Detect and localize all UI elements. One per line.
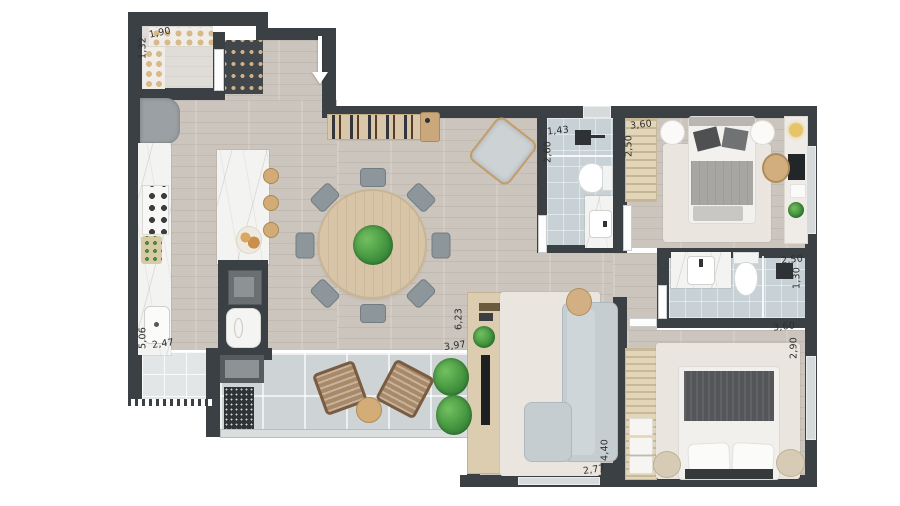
living-window <box>518 477 600 485</box>
bath1-toilet <box>578 163 604 193</box>
bathroom2-door <box>659 286 666 318</box>
desk-monitor-icon <box>788 154 805 180</box>
console-box-1 <box>479 303 501 311</box>
cutting-board <box>141 236 162 264</box>
bath2-tap-icon <box>699 259 703 267</box>
pantry-door <box>215 50 223 90</box>
balcony-plant-1 <box>433 358 469 396</box>
balcony-counter <box>220 355 264 383</box>
island-stool-3 <box>263 222 279 238</box>
dim-living-length: 6,23 <box>454 308 465 330</box>
bedroom1-bed <box>688 116 756 224</box>
balcony-counter-top <box>225 360 259 378</box>
bath1-shower-glass <box>547 155 613 157</box>
bedroom1-pillow-2 <box>721 127 748 151</box>
balcony-railing <box>220 429 472 438</box>
bath1-sink <box>589 210 612 238</box>
oven-door <box>234 277 254 297</box>
dim-living-width: 3,97 <box>443 339 466 353</box>
washing-machine <box>226 308 261 348</box>
island-stool-2 <box>263 195 279 211</box>
dim-bath1-length: 2,60 <box>543 141 554 163</box>
tv-icon <box>481 355 490 425</box>
bedroom2-window <box>806 356 816 440</box>
bedroom1-door <box>624 206 631 250</box>
bread-plate <box>237 227 261 253</box>
bath1-toilet-tank <box>602 165 613 191</box>
dim-kitchen-length: 5,06 <box>138 327 149 349</box>
dim-bedroom2-width: 3,60 <box>773 320 796 333</box>
dining-chair-w <box>296 233 315 259</box>
bedroom2-bed <box>678 366 780 480</box>
bedroom2-side-rug-left <box>653 451 681 478</box>
bathroom1-window <box>583 106 611 118</box>
dim-bedroom1-closet-depth: 2,50 <box>624 135 635 157</box>
dim-bath2-width: 2,50 <box>781 253 804 266</box>
barbecue-grill <box>224 387 254 429</box>
entrance-arrow-head <box>312 72 328 84</box>
dining-chair-s <box>360 304 386 323</box>
dim-bath2-depth: 1,30 <box>792 267 803 289</box>
wardrobe-linen-2 <box>629 437 653 455</box>
floor-plan: 1,90 1,32 5,06 2,47 6,23 3,97 4,40 2,77 … <box>0 0 900 506</box>
island-stool-1 <box>263 168 279 184</box>
bedroom1-nightstand-right <box>750 120 775 145</box>
bedroom1-desk <box>784 116 808 244</box>
desk-chair <box>762 153 790 183</box>
bedroom2-side-rug-right <box>776 449 805 477</box>
console-box-2 <box>479 313 493 321</box>
balcony-table <box>356 397 382 423</box>
bedroom2-blanket <box>684 371 774 421</box>
bedroom1-blanket <box>691 161 753 205</box>
dining-centerpiece-plant <box>353 225 393 265</box>
wardrobe-linen-1 <box>629 418 653 436</box>
bedroom2-headboard <box>685 469 773 479</box>
entry-console-shelf <box>225 40 263 94</box>
bedroom2-door <box>630 319 656 326</box>
wardrobe-linen-3 <box>629 456 653 474</box>
entrance-arrow-shaft <box>318 36 322 74</box>
sofa-side-table <box>566 288 592 316</box>
dim-living-depth: 4,40 <box>600 439 611 461</box>
desk-plant <box>788 202 804 218</box>
balcony-plant-2 <box>436 395 472 435</box>
cooktop <box>142 185 169 235</box>
sofa-chaise <box>524 402 572 462</box>
bath1-shower-arm <box>591 135 605 138</box>
bedroom1-foot-throw <box>693 206 743 221</box>
console-plant <box>473 326 495 348</box>
bath2-sink <box>687 256 715 285</box>
bedroom1-nightstand-left <box>660 120 685 145</box>
bath1-tap-icon <box>603 221 607 227</box>
dim-bath1-width: 1,43 <box>547 124 570 137</box>
dining-chair-e <box>432 233 451 259</box>
service-area-floor <box>142 352 206 400</box>
side-table-decor <box>425 118 430 123</box>
bath2-toilet <box>734 262 758 296</box>
built-in-oven <box>228 270 262 305</box>
desk-papers <box>790 184 806 198</box>
service-vent-louver <box>128 399 214 406</box>
bedroom1-headboard <box>689 117 755 126</box>
dim-bedroom1-width: 3,60 <box>630 118 653 131</box>
dim-bedroom2-depth: 2,90 <box>789 337 800 359</box>
wall-top-left <box>128 12 268 26</box>
sink-faucet-icon <box>154 322 159 327</box>
fridge <box>140 98 180 144</box>
bath1-shower-head-icon <box>575 130 591 145</box>
desk-lamp-icon <box>789 123 803 137</box>
bedroom1-pillow-1 <box>693 126 721 151</box>
bathroom1-door <box>539 216 546 252</box>
washer-drum-icon <box>234 318 243 338</box>
wall-balcony-left <box>206 348 220 437</box>
side-table <box>420 112 440 142</box>
dining-chair-n <box>360 168 386 187</box>
dim-pantry-depth: 1,32 <box>138 37 149 59</box>
bath2-shower-glass <box>762 256 764 318</box>
